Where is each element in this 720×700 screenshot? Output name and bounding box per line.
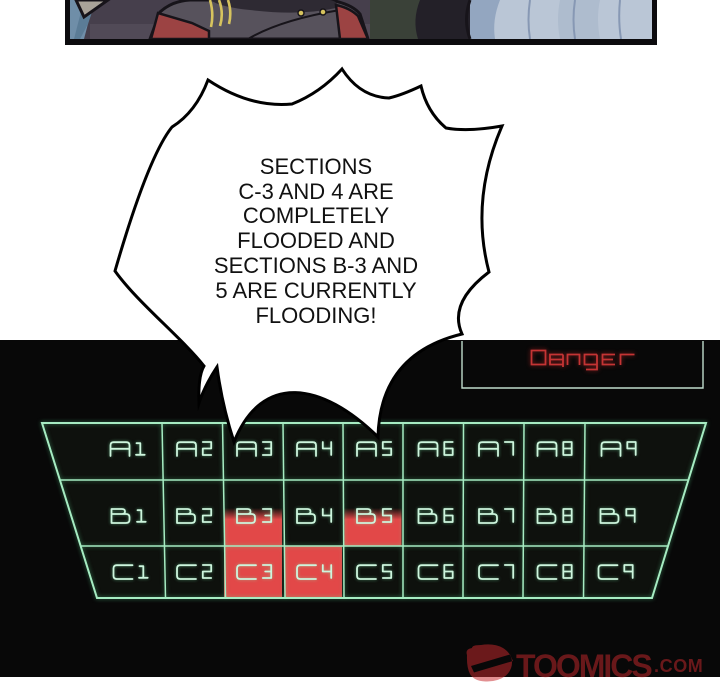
svg-text:.COM: .COM bbox=[654, 656, 703, 676]
svg-text:TOOMICS: TOOMICS bbox=[516, 648, 652, 684]
